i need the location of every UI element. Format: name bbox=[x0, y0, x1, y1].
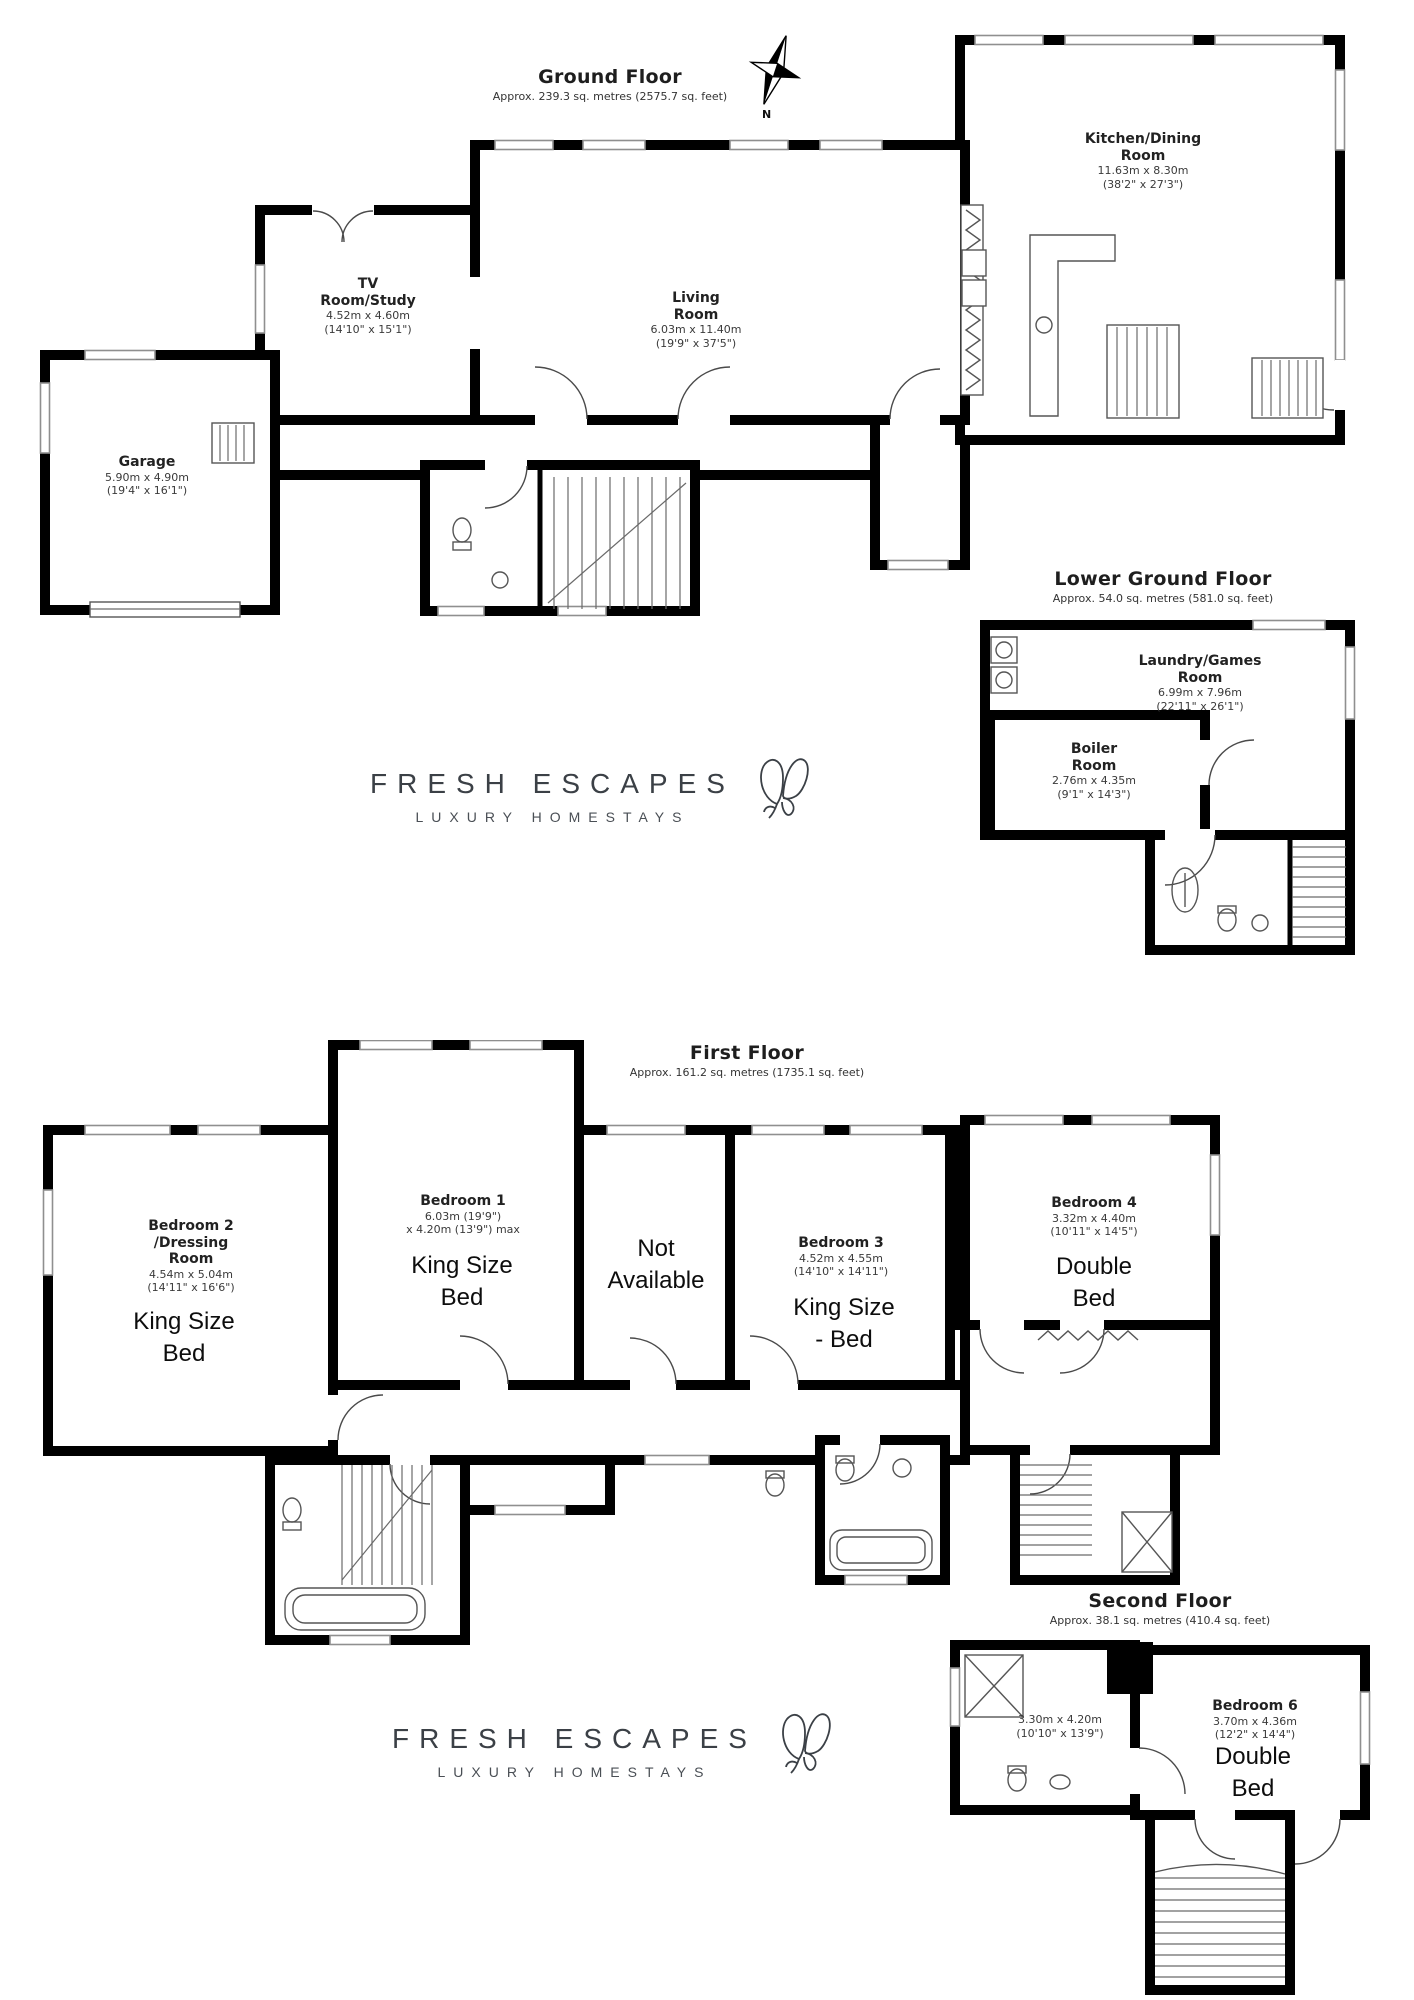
room-label-living: Living Room 6.03m x 11.40m (19'9" x 37'5… bbox=[651, 290, 742, 350]
floor-title: First Floor bbox=[630, 1042, 864, 1064]
room-label-bedroom4: Bedroom 4 3.32m x 4.40m (10'11" x 14'5") bbox=[1050, 1195, 1137, 1239]
brand-tagline: LUXURY HOMESTAYS bbox=[370, 809, 735, 825]
room-label-laundry-games: Laundry/Games Room 6.99m x 7.96m (22'11"… bbox=[1139, 653, 1262, 713]
first-floor-header: First Floor Approx. 161.2 sq. metres (17… bbox=[630, 1042, 864, 1079]
brand-logo-text: FRESH ESCAPES LUXURY HOMESTAYS bbox=[392, 1723, 757, 1780]
brand-name: FRESH ESCAPES bbox=[370, 768, 735, 800]
floor-area: Approx. 54.0 sq. metres (581.0 sq. feet) bbox=[1053, 592, 1273, 605]
garage-door-icon bbox=[90, 602, 240, 617]
room-label-second-floor-room: 3.30m x 4.20m (10'10" x 13'9") bbox=[1016, 1713, 1103, 1740]
lower-ground-floor-header: Lower Ground Floor Approx. 54.0 sq. metr… bbox=[1053, 568, 1273, 605]
compass-icon bbox=[740, 32, 810, 112]
brand-name: FRESH ESCAPES bbox=[392, 1723, 757, 1755]
brand-tagline: LUXURY HOMESTAYS bbox=[392, 1764, 757, 1780]
butterfly-icon bbox=[777, 1707, 831, 1777]
second-floor-header: Second Floor Approx. 38.1 sq. metres (41… bbox=[1050, 1590, 1270, 1627]
room-label-boiler: Boiler Room 2.76m x 4.35m (9'1" x 14'3") bbox=[1052, 741, 1136, 801]
floor-area: Approx. 239.3 sq. metres (2575.7 sq. fee… bbox=[493, 90, 727, 103]
floor-area: Approx. 161.2 sq. metres (1735.1 sq. fee… bbox=[630, 1066, 864, 1079]
butterfly-icon bbox=[755, 752, 809, 822]
room-label-bedroom2: Bedroom 2 /Dressing Room 4.54m x 5.04m (… bbox=[147, 1218, 234, 1295]
note-bedroom3-bed: King Size - Bed bbox=[793, 1292, 894, 1356]
room-label-tv-study: TV Room/Study 4.52m x 4.60m (14'10" x 15… bbox=[320, 276, 416, 336]
ground-floor-header: Ground Floor Approx. 239.3 sq. metres (2… bbox=[493, 66, 727, 103]
room-label-bedroom6: Bedroom 6 3.70m x 4.36m (12'2" x 14'4") bbox=[1212, 1698, 1298, 1742]
lower-ground-floor-plan bbox=[955, 585, 1385, 960]
note-bedroom4-bed: Double Bed bbox=[1056, 1251, 1132, 1315]
note-bedroom6-bed: Double Bed bbox=[1215, 1741, 1291, 1805]
floor-title: Ground Floor bbox=[493, 66, 727, 88]
brand-logo: FRESH ESCAPES LUXURY HOMESTAYS bbox=[370, 768, 809, 825]
floorplan-page: N Ground Floor Approx. 239.3 sq. metres … bbox=[0, 0, 1414, 2000]
brand-logo: FRESH ESCAPES LUXURY HOMESTAYS bbox=[392, 1723, 831, 1780]
room-label-kitchen-dining: Kitchen/Dining Room 11.63m x 8.30m (38'2… bbox=[1085, 131, 1201, 191]
brand-logo-text: FRESH ESCAPES LUXURY HOMESTAYS bbox=[370, 768, 735, 825]
floor-title: Lower Ground Floor bbox=[1053, 568, 1273, 590]
room-label-bedroom1: Bedroom 1 6.03m (19'9") x 4.20m (13'9") … bbox=[406, 1193, 520, 1237]
floor-title: Second Floor bbox=[1050, 1590, 1270, 1612]
compass-north-label: N bbox=[762, 108, 771, 121]
floor-area: Approx. 38.1 sq. metres (410.4 sq. feet) bbox=[1050, 1614, 1270, 1627]
note-bedroom2-bed: King Size Bed bbox=[133, 1306, 234, 1370]
garage-steps-icon bbox=[212, 423, 254, 463]
room-label-garage: Garage 5.90m x 4.90m (19'4" x 16'1") bbox=[105, 454, 189, 498]
room-label-bedroom3: Bedroom 3 4.52m x 4.55m (14'10" x 14'11"… bbox=[794, 1235, 888, 1279]
second-floor-plan bbox=[945, 1630, 1385, 2000]
note-bedroom1-bed: King Size Bed bbox=[411, 1250, 512, 1314]
note-not-available: Not Available bbox=[608, 1233, 705, 1297]
